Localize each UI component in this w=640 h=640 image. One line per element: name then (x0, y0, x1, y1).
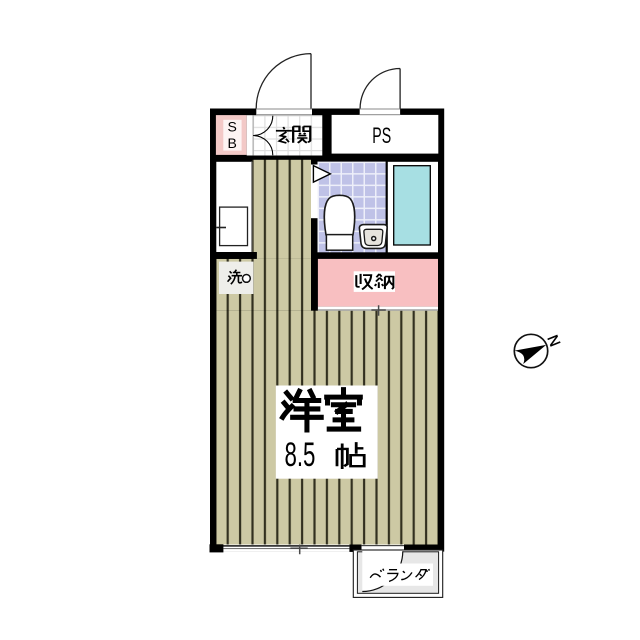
svg-text:S: S (228, 118, 237, 134)
svg-text:PS: PS (372, 123, 391, 148)
svg-text:B: B (228, 135, 237, 151)
svg-text:8.5: 8.5 (285, 436, 316, 474)
